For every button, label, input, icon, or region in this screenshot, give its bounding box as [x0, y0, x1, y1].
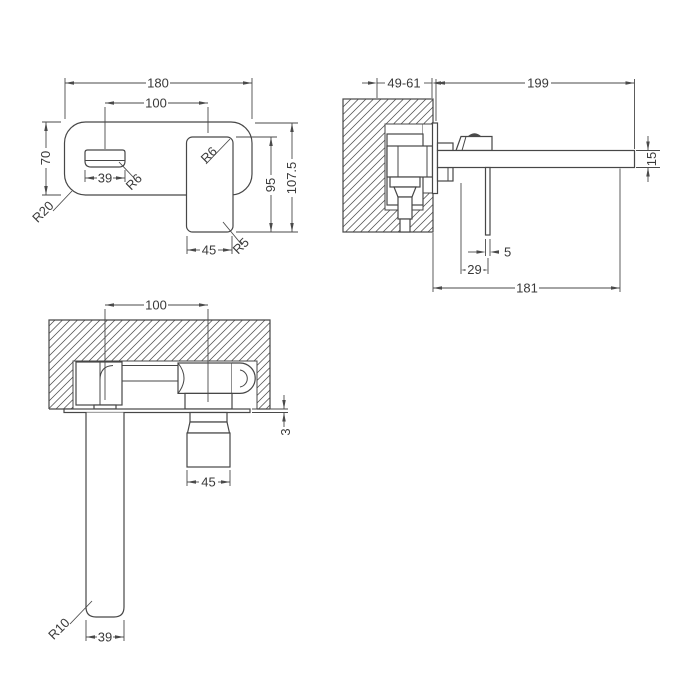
- spout-valve-plan: [76, 362, 122, 405]
- dim-plan-plate-thickness-label: 3: [278, 428, 293, 435]
- dim-front-handle-bottom-radius-label: R5: [230, 235, 252, 257]
- dim-side-spout-reach-label: 181: [516, 281, 538, 296]
- dim-front-width-label: 180: [147, 76, 169, 91]
- handle-dome: [468, 133, 482, 136]
- plan-view-geometry: [49, 320, 270, 617]
- spout-neck-upper: [438, 143, 454, 151]
- dim-plan-spout-end-radius: R10: [45, 601, 92, 643]
- spout-valve-foot: [94, 405, 116, 409]
- dim-front-spout-width-label: 39: [98, 171, 112, 186]
- handle-neck-plan: [190, 413, 227, 423]
- spout-outlet-slot: [85, 150, 125, 167]
- dim-plan-spout-width: 39: [86, 620, 124, 645]
- handle-valve-plan: [185, 393, 232, 409]
- dim-front-total-height-label: 107.5: [284, 162, 299, 195]
- dim-front-plate-height-label: 70: [38, 151, 53, 165]
- supply-pipe: [398, 197, 412, 219]
- supply-taper: [394, 187, 416, 197]
- handle-collar-plan: [188, 422, 230, 433]
- dim-front-total-height: 107.5: [255, 123, 299, 232]
- dim-side-lever-offset: 29: [461, 183, 488, 277]
- front-view: 180 100 70 39 R6 R20: [29, 76, 299, 258]
- dim-front-centers-label: 100: [145, 96, 167, 111]
- plan-view: 100 3 45 R10 39: [45, 298, 293, 645]
- dim-front-plate-height: 70: [38, 122, 61, 195]
- dim-plan-spout-end-radius-label: R10: [45, 615, 72, 642]
- spout-side: [438, 151, 635, 168]
- dim-plan-handle-width-label: 45: [201, 475, 215, 490]
- spout-neck-lower: [438, 168, 454, 182]
- dim-side-wall-depth: 49-61: [362, 76, 441, 99]
- crossbar-plan: [178, 363, 232, 393]
- dim-side-lever-thickness-label: 5: [504, 245, 511, 260]
- dim-plan-handle-width: 45: [187, 470, 230, 490]
- dim-side-lever-offset-label: 29: [467, 262, 481, 277]
- dim-side-lever-thickness: 5: [468, 239, 511, 260]
- dim-front-plate-radius: R20: [29, 191, 72, 226]
- supply-pipe-end: [400, 219, 410, 232]
- wall-plate-side: [433, 123, 438, 194]
- side-view-geometry: [343, 99, 635, 235]
- dim-side-spout-length-label: 199: [527, 76, 549, 91]
- supply-union: [390, 177, 420, 187]
- dim-front-plate-radius-label: R20: [29, 198, 56, 225]
- handle-grip-plan: [187, 433, 230, 467]
- dim-plan-centers-label: 100: [145, 298, 167, 313]
- handle-cap-side: [456, 137, 492, 151]
- side-view: 49-61 199 15 5 29: [343, 76, 660, 296]
- faucet-technical-drawing: 180 100 70 39 R6 R20: [0, 0, 700, 700]
- dim-front-handle-height-label: 95: [263, 178, 278, 192]
- dim-side-wall-depth-label: 49-61: [387, 76, 420, 91]
- dim-plan-spout-width-label: 39: [98, 630, 112, 645]
- dim-side-spout-thickness: 15: [636, 136, 660, 182]
- spout-tube-plan: [86, 413, 124, 618]
- dim-front-handle-width: 45: [187, 236, 232, 258]
- dim-front-handle-width-label: 45: [202, 243, 216, 258]
- handle-lever-side: [486, 168, 491, 236]
- dim-front-handle-bottom-radius: R5: [223, 222, 252, 257]
- dim-side-spout-thickness-label: 15: [644, 152, 659, 166]
- cartridge-side: [387, 146, 433, 177]
- technical-drawing-page: 180 100 70 39 R6 R20: [0, 0, 700, 700]
